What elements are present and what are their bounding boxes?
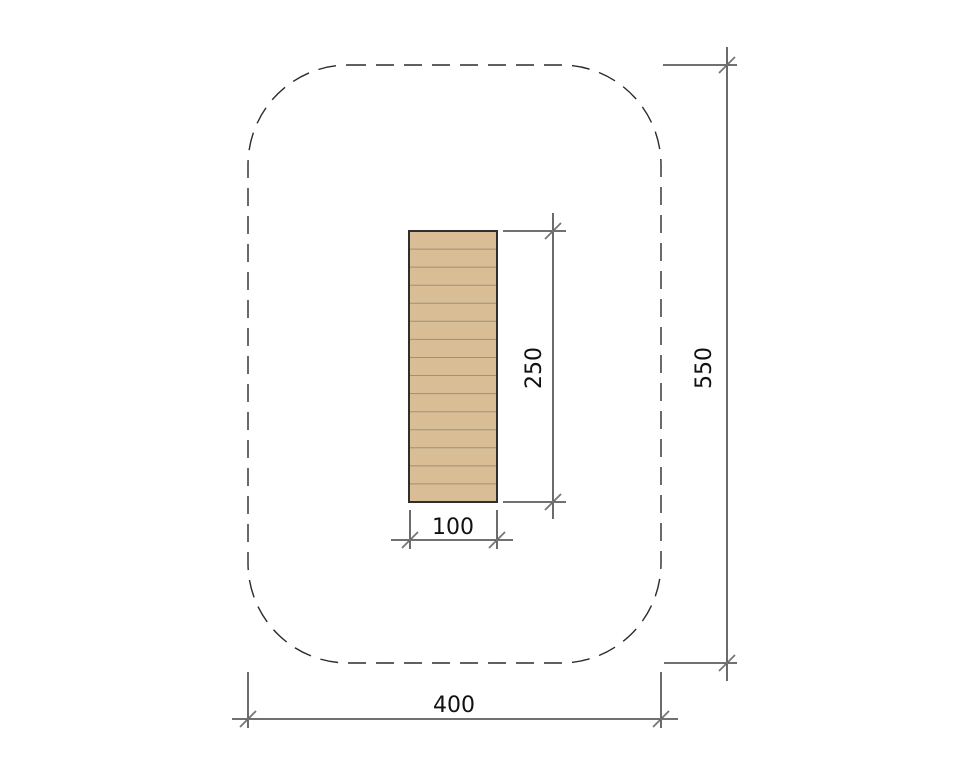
dimension-label-area-width: 400 [433, 693, 475, 718]
dimension-label-plank-width: 100 [432, 515, 474, 540]
dimension-label-plank-height: 250 [522, 347, 547, 389]
dimension-label-area-height: 550 [692, 347, 717, 389]
technical-drawing: 250 100 550 400 [0, 0, 963, 781]
equipment-plank [409, 231, 497, 502]
technical-drawing-canvas: 250 100 550 400 [0, 0, 963, 781]
plank-body [409, 231, 497, 502]
